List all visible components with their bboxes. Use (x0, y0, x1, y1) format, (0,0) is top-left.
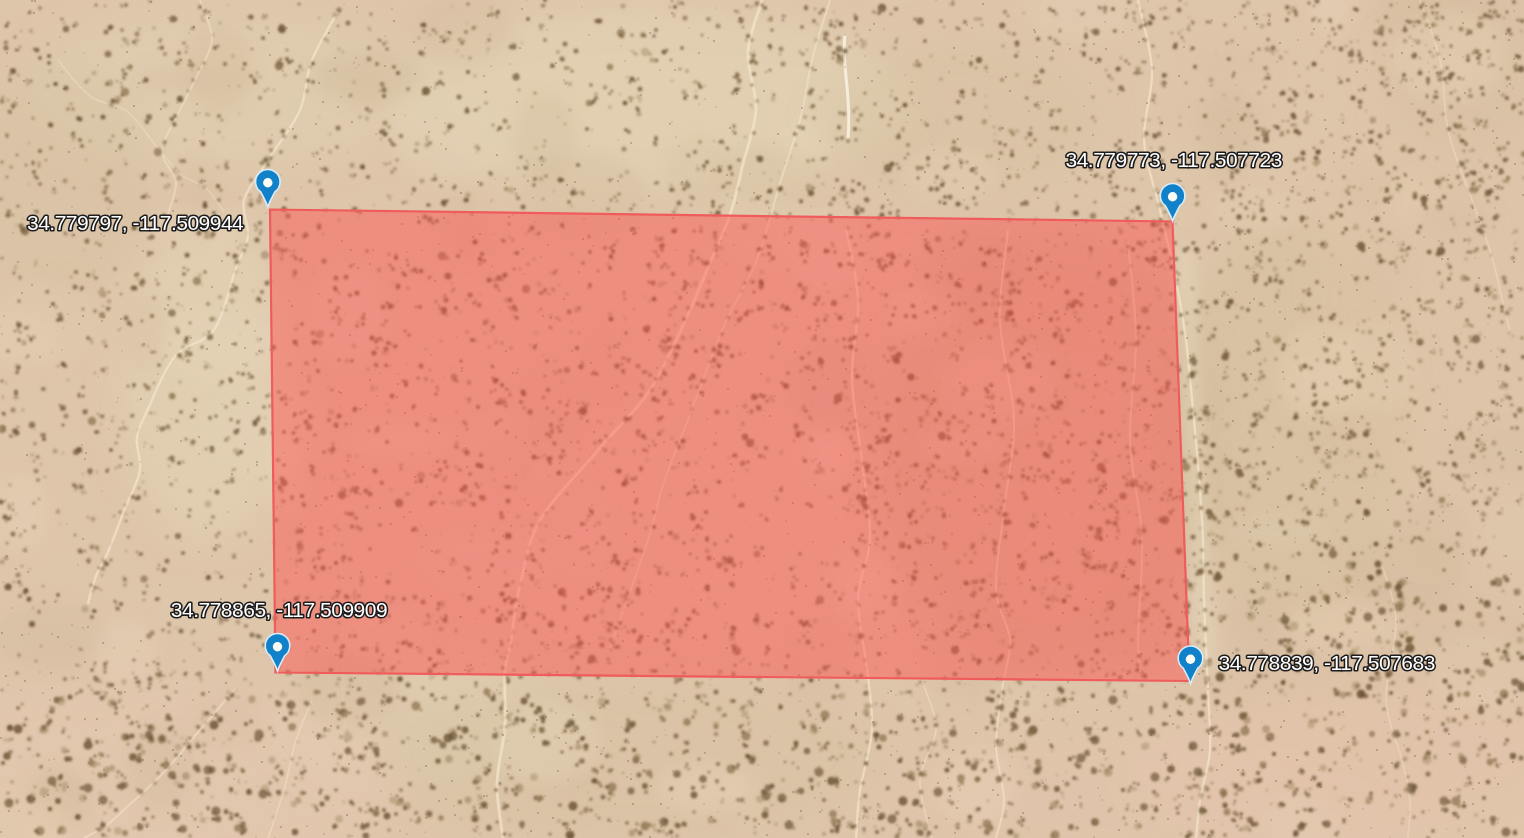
svg-text:34.778839, -117.507683: 34.778839, -117.507683 (1219, 651, 1435, 674)
svg-text:34.779797, -117.509944: 34.779797, -117.509944 (27, 211, 244, 234)
svg-text:34.778865, -117.509909: 34.778865, -117.509909 (171, 598, 387, 621)
svg-text:34.779773, -117.507723: 34.779773, -117.507723 (1066, 148, 1282, 171)
